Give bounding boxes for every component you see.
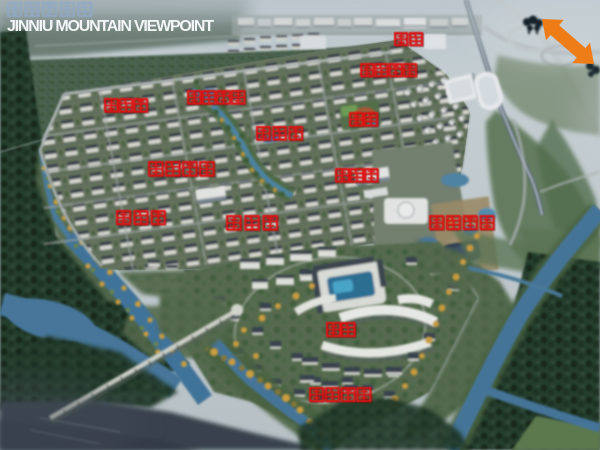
svg-text:JINNIU MOUNTAIN VIEWPOINT: JINNIU MOUNTAIN VIEWPOINT [7,18,214,35]
